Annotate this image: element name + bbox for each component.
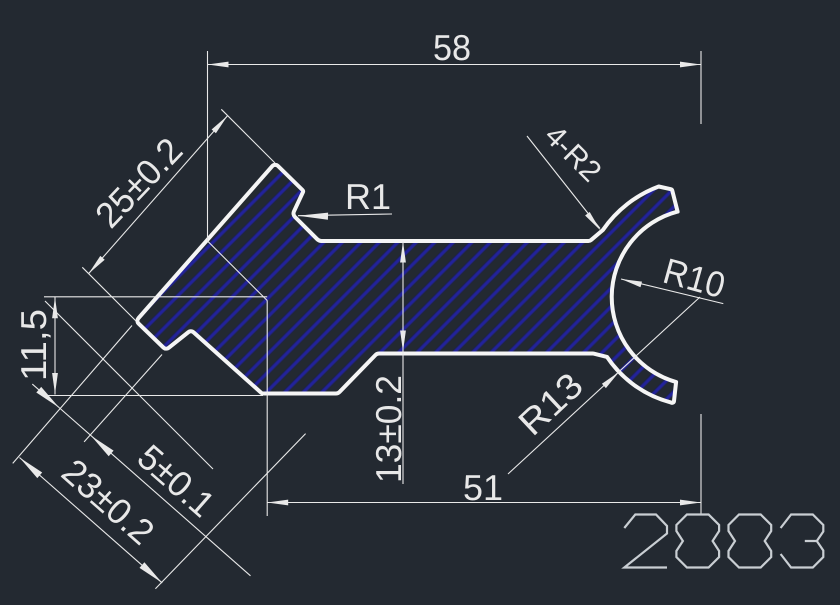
svg-text:58: 58 (433, 27, 471, 68)
svg-text:R1: R1 (345, 176, 391, 217)
svg-text:13±0.2: 13±0.2 (368, 375, 409, 483)
svg-text:11,5: 11,5 (13, 309, 54, 381)
svg-text:51: 51 (463, 467, 503, 508)
